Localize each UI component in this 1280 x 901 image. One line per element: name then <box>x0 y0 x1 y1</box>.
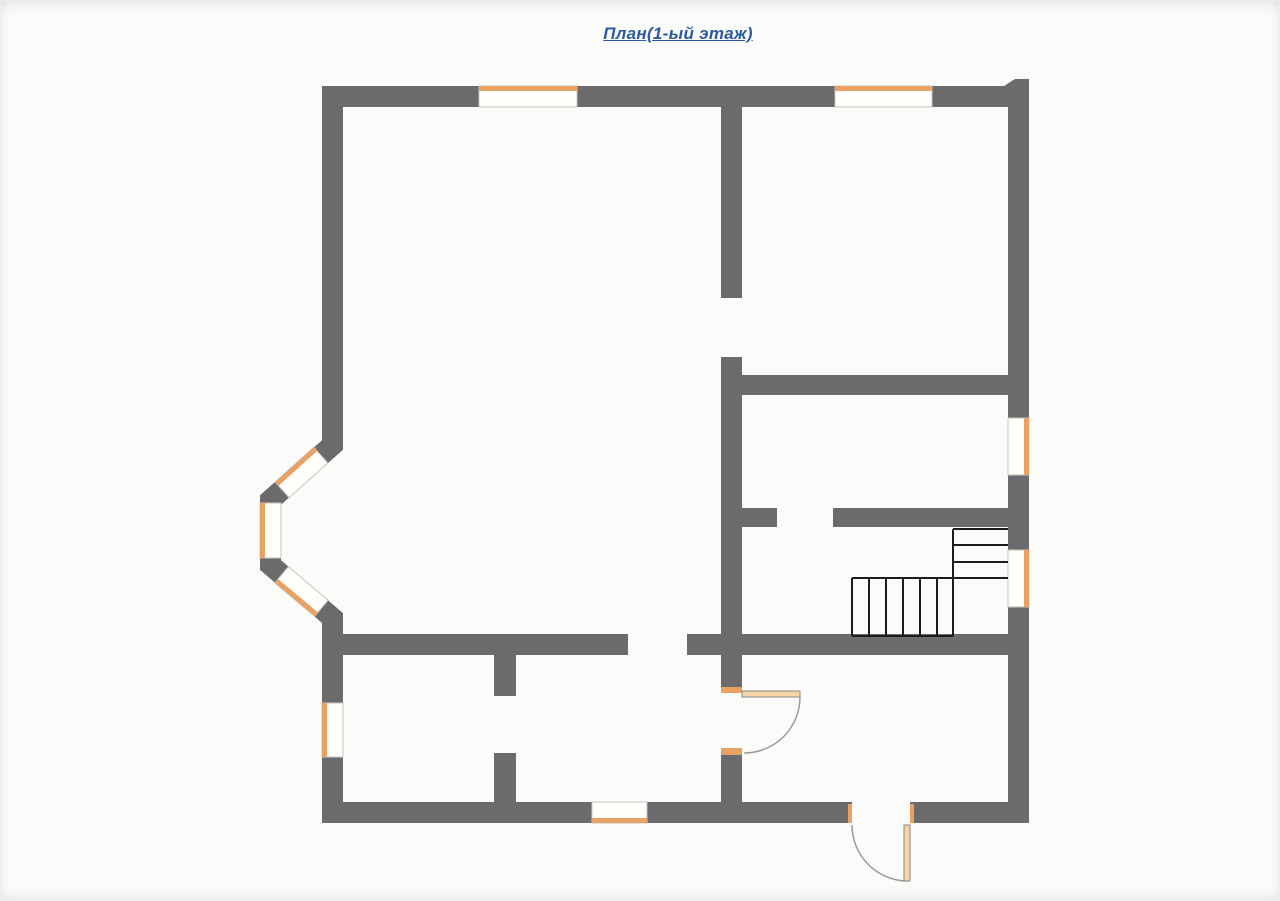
interior-door-hall <box>721 687 800 755</box>
window-right-2 <box>1008 550 1029 607</box>
outer-wall-left-lower-b <box>322 757 343 823</box>
outer-wall-right-lower <box>1008 607 1029 823</box>
entrance-door <box>848 804 914 881</box>
outer-wall-top-left <box>322 86 479 107</box>
interior-wall-stair-bottom <box>742 634 1008 655</box>
interior-wall-center-lower <box>721 750 742 802</box>
floor-plan-page: План(1-ый этаж) <box>0 0 1280 901</box>
staircase <box>852 529 1008 636</box>
bay-window-middle <box>260 503 281 558</box>
outer-wall-left-lower-a <box>322 618 343 703</box>
interior-wall-divider-upper <box>494 655 516 696</box>
bay-window-lower <box>275 567 328 617</box>
outer-wall-bottom-right <box>910 802 1029 823</box>
walls-layer <box>271 79 1030 823</box>
outer-wall-top-mid <box>577 86 835 107</box>
outer-wall-top-right <box>932 86 1004 107</box>
window-top-2 <box>835 86 932 107</box>
window-bottom-1 <box>592 802 647 823</box>
outer-wall-right-mid <box>1008 475 1029 550</box>
interior-wall-center-upper <box>721 107 742 298</box>
outer-wall-bottom-mid <box>647 802 852 823</box>
outer-wall-left-upper <box>322 86 343 430</box>
window-left-1 <box>322 703 343 757</box>
interior-wall-stair-top <box>833 508 1008 527</box>
window-right-1 <box>1008 418 1029 475</box>
interior-wall-room-right-bottom <box>742 375 1008 395</box>
outer-wall-bottom-left <box>322 802 592 823</box>
interior-wall-hall-stub <box>687 634 721 655</box>
bay-window-upper <box>275 447 328 497</box>
interior-wall-stair-top-stub <box>742 508 777 527</box>
interior-wall-divider-lower <box>494 753 516 802</box>
window-top-1 <box>479 86 577 107</box>
floor-plan-canvas <box>0 0 1280 901</box>
windows-layer <box>260 86 1029 823</box>
interior-wall-center-mid <box>721 357 742 692</box>
outer-wall-right-upper <box>1008 107 1029 418</box>
interior-wall-left-room-bottom <box>343 634 628 655</box>
doors-layer <box>721 687 914 881</box>
outer-wall-top-right-corner-notch <box>1004 79 1029 107</box>
